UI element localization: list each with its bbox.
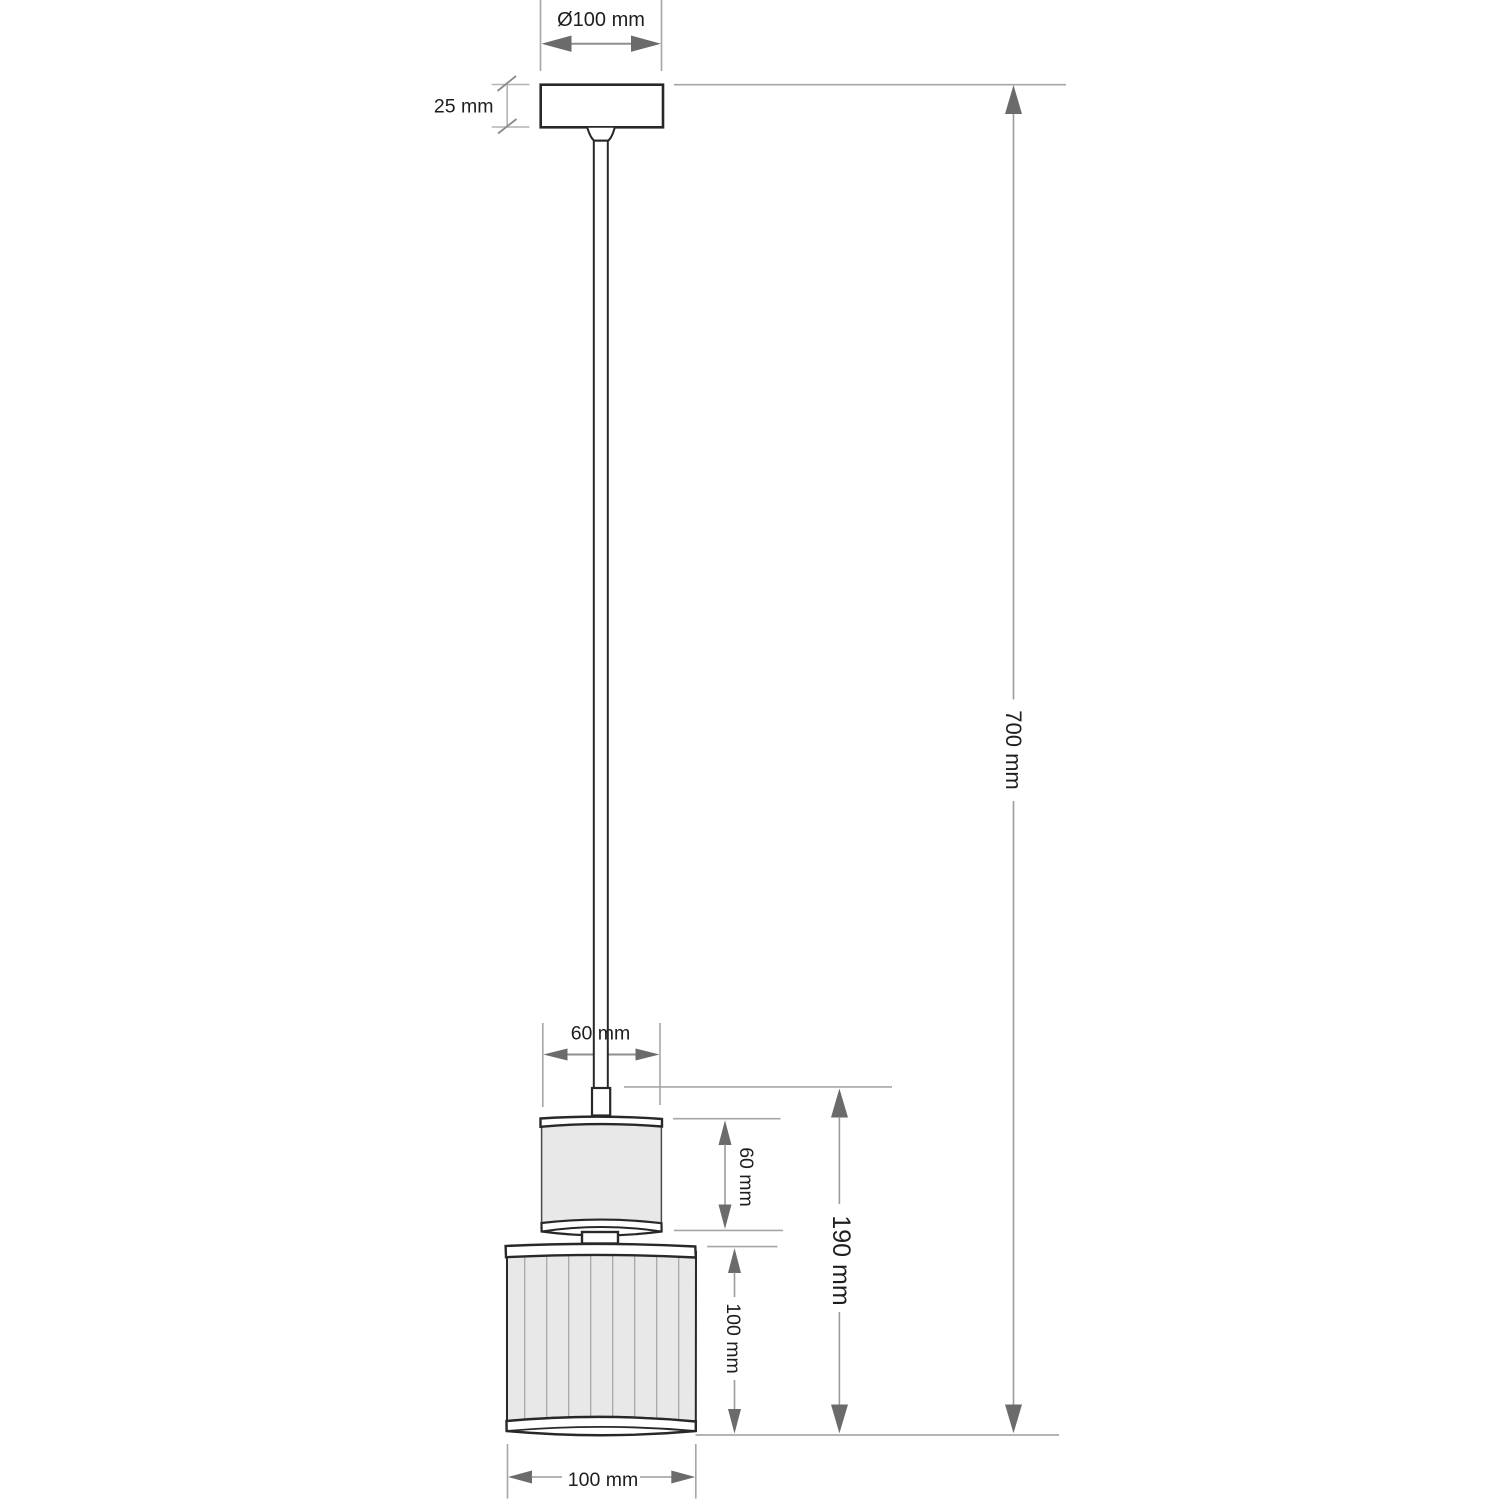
svg-text:60 mm: 60 mm [735,1147,757,1207]
svg-text:190 mm: 190 mm [827,1215,855,1305]
svg-text:60 mm: 60 mm [571,1023,631,1045]
svg-text:Ø100 mm: Ø100 mm [557,9,645,31]
svg-text:100 mm: 100 mm [568,1469,638,1491]
svg-text:25 mm: 25 mm [434,95,494,117]
svg-text:700 mm: 700 mm [1001,710,1026,789]
svg-text:100 mm: 100 mm [722,1303,744,1373]
